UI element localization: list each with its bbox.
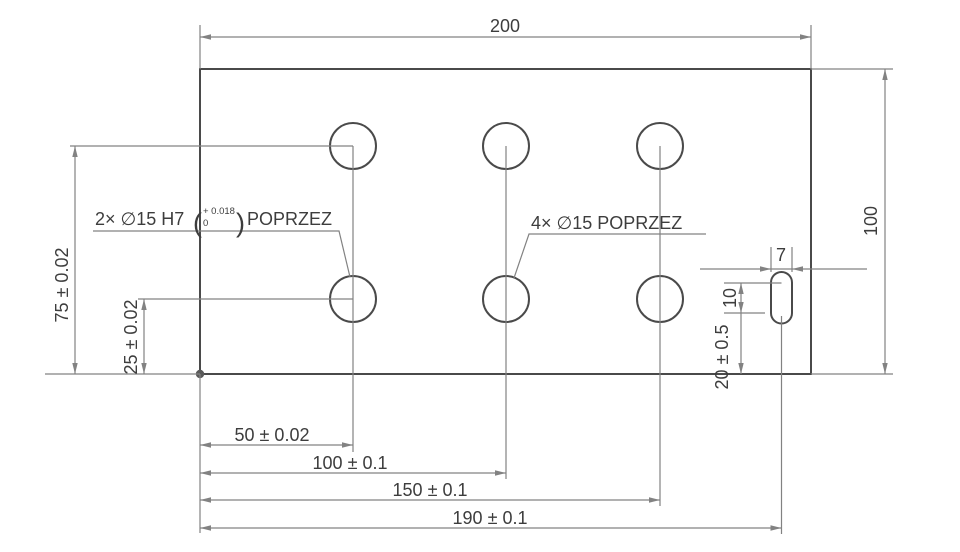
callout-reamed-leader [93, 231, 350, 277]
arrowhead [800, 34, 811, 39]
callout-reamed-holes: 2× ∅15 H7 ( + 0.018 0 ) POPRZEZ [93, 206, 350, 277]
dim-label-100-right: 100 [861, 206, 881, 236]
callout-reamed-paren-close: ) [236, 208, 245, 238]
dim-label-75: 75 ± 0.02 [52, 248, 72, 323]
dim-row-top-75: 75 ± 0.02 [52, 146, 78, 374]
arrowhead [771, 525, 782, 530]
drawing-sheet: 200 100 75 ± 0.02 25 ± 0.02 50 ± 0.02 10… [0, 0, 960, 552]
arrowhead [342, 442, 353, 447]
callout-plain-text: 4× ∅15 POPRZEZ [531, 213, 682, 233]
dim-label-20: 20 ± 0.5 [712, 325, 732, 390]
dim-width-200: 200 [200, 16, 811, 69]
dim-col1-50: 50 ± 0.02 [200, 425, 353, 448]
arrowhead [495, 470, 506, 475]
arrowhead [792, 266, 803, 271]
arrowhead [200, 442, 211, 447]
callout-reamed-paren-open: ( [193, 208, 202, 238]
arrowhead [200, 470, 211, 475]
arrowhead [882, 69, 887, 80]
arrowhead [200, 525, 211, 530]
arrowhead [72, 146, 77, 157]
arrowhead [72, 363, 77, 374]
dim-label-7: 7 [776, 245, 786, 265]
callout-reamed-suffix: POPRZEZ [247, 209, 332, 229]
dim-label-100-bottom: 100 ± 0.1 [313, 453, 388, 473]
dim-label-190: 190 ± 0.1 [453, 508, 528, 528]
dim-label-200: 200 [490, 16, 520, 36]
dim-col2-100: 100 ± 0.1 [200, 453, 506, 476]
dim-col3-150: 150 ± 0.1 [200, 480, 660, 503]
dim-label-50: 50 ± 0.02 [235, 425, 310, 445]
dim-height-100: 100 [811, 69, 893, 374]
arrowhead [738, 363, 743, 374]
arrowhead [760, 266, 771, 271]
arrowhead [141, 363, 146, 374]
callout-plain-holes: 4× ∅15 POPRZEZ [514, 213, 706, 278]
slot [771, 272, 792, 324]
arrowhead [649, 497, 660, 502]
callout-reamed-prefix: 2× ∅15 H7 [95, 209, 184, 229]
arrowhead [200, 34, 211, 39]
arrowhead [141, 299, 146, 310]
dim-row-bottom-25: 25 ± 0.02 [121, 299, 147, 374]
arrowhead [200, 497, 211, 502]
arrowhead [882, 363, 887, 374]
dim-label-150: 150 ± 0.1 [393, 480, 468, 500]
dim-label-10: 10 [720, 288, 740, 308]
drawing-canvas: 200 100 75 ± 0.02 25 ± 0.02 50 ± 0.02 10… [0, 0, 960, 552]
dim-slot-width-7: 7 [700, 245, 867, 272]
callout-reamed-tol-lower: 0 [203, 218, 208, 229]
callout-reamed-tol-upper: + 0.018 [203, 206, 235, 217]
callout-plain-leader [514, 234, 706, 278]
dim-label-25: 25 ± 0.02 [121, 300, 141, 375]
dim-slot-190: 190 ± 0.1 [200, 508, 782, 531]
